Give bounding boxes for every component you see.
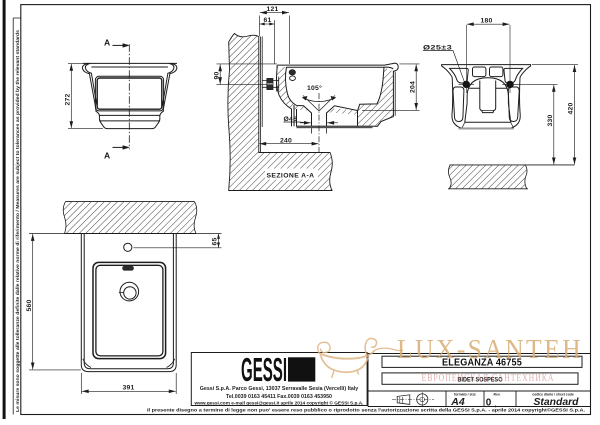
- svg-text:65: 65: [212, 237, 219, 245]
- svg-text:www.gessi.com e-mail gessi@g: www.gessi.com e-mail gessi@gessi.it apri…: [193, 400, 363, 405]
- svg-text:A: A: [104, 38, 110, 48]
- svg-text:SEZIONE A-A: SEZIONE A-A: [267, 172, 315, 179]
- svg-text:61: 61: [264, 17, 272, 24]
- svg-text:105°: 105°: [307, 84, 322, 92]
- svg-text:ЕВРОПЕЙСКАЯ САНТЕХНИКА: ЕВРОПЕЙСКАЯ САНТЕХНИКА: [422, 372, 555, 384]
- svg-text:90: 90: [213, 71, 220, 79]
- svg-text:Rev.: Rev.: [494, 392, 501, 396]
- svg-text:420: 420: [568, 102, 575, 114]
- svg-text:A4: A4: [450, 396, 465, 408]
- svg-text:240: 240: [280, 138, 292, 145]
- svg-text:204: 204: [409, 81, 416, 93]
- svg-text:LUX-SANTEH: LUX-SANTEH: [397, 333, 583, 364]
- svg-text:Il presente disegno a term: Il presente disegno a termine di legge n…: [147, 407, 585, 413]
- svg-text:Standard: Standard: [533, 397, 579, 408]
- svg-text:180: 180: [481, 17, 493, 24]
- svg-text:121: 121: [267, 6, 279, 13]
- svg-text:560: 560: [26, 299, 33, 311]
- svg-text:0: 0: [486, 397, 492, 408]
- svg-text:Le misure sono soggette alle t: Le misure sono soggette alle tolleranze …: [15, 29, 20, 412]
- svg-text:GESSI: GESSI: [241, 352, 287, 389]
- svg-text:391: 391: [123, 385, 135, 392]
- svg-text:Tel.0039 0163 45411 Fax.003: Tel.0039 0163 45411 Fax.0039 0163 453950: [226, 394, 332, 400]
- svg-text:A: A: [104, 151, 110, 161]
- svg-text:330: 330: [547, 114, 554, 126]
- svg-text:Gessi S.p.A. Parco Gessi,: Gessi S.p.A. Parco Gessi, 13037 Serraval…: [200, 386, 358, 392]
- svg-text:272: 272: [65, 93, 72, 105]
- svg-text:codice diario / sheet code: codice diario / sheet code: [532, 392, 574, 396]
